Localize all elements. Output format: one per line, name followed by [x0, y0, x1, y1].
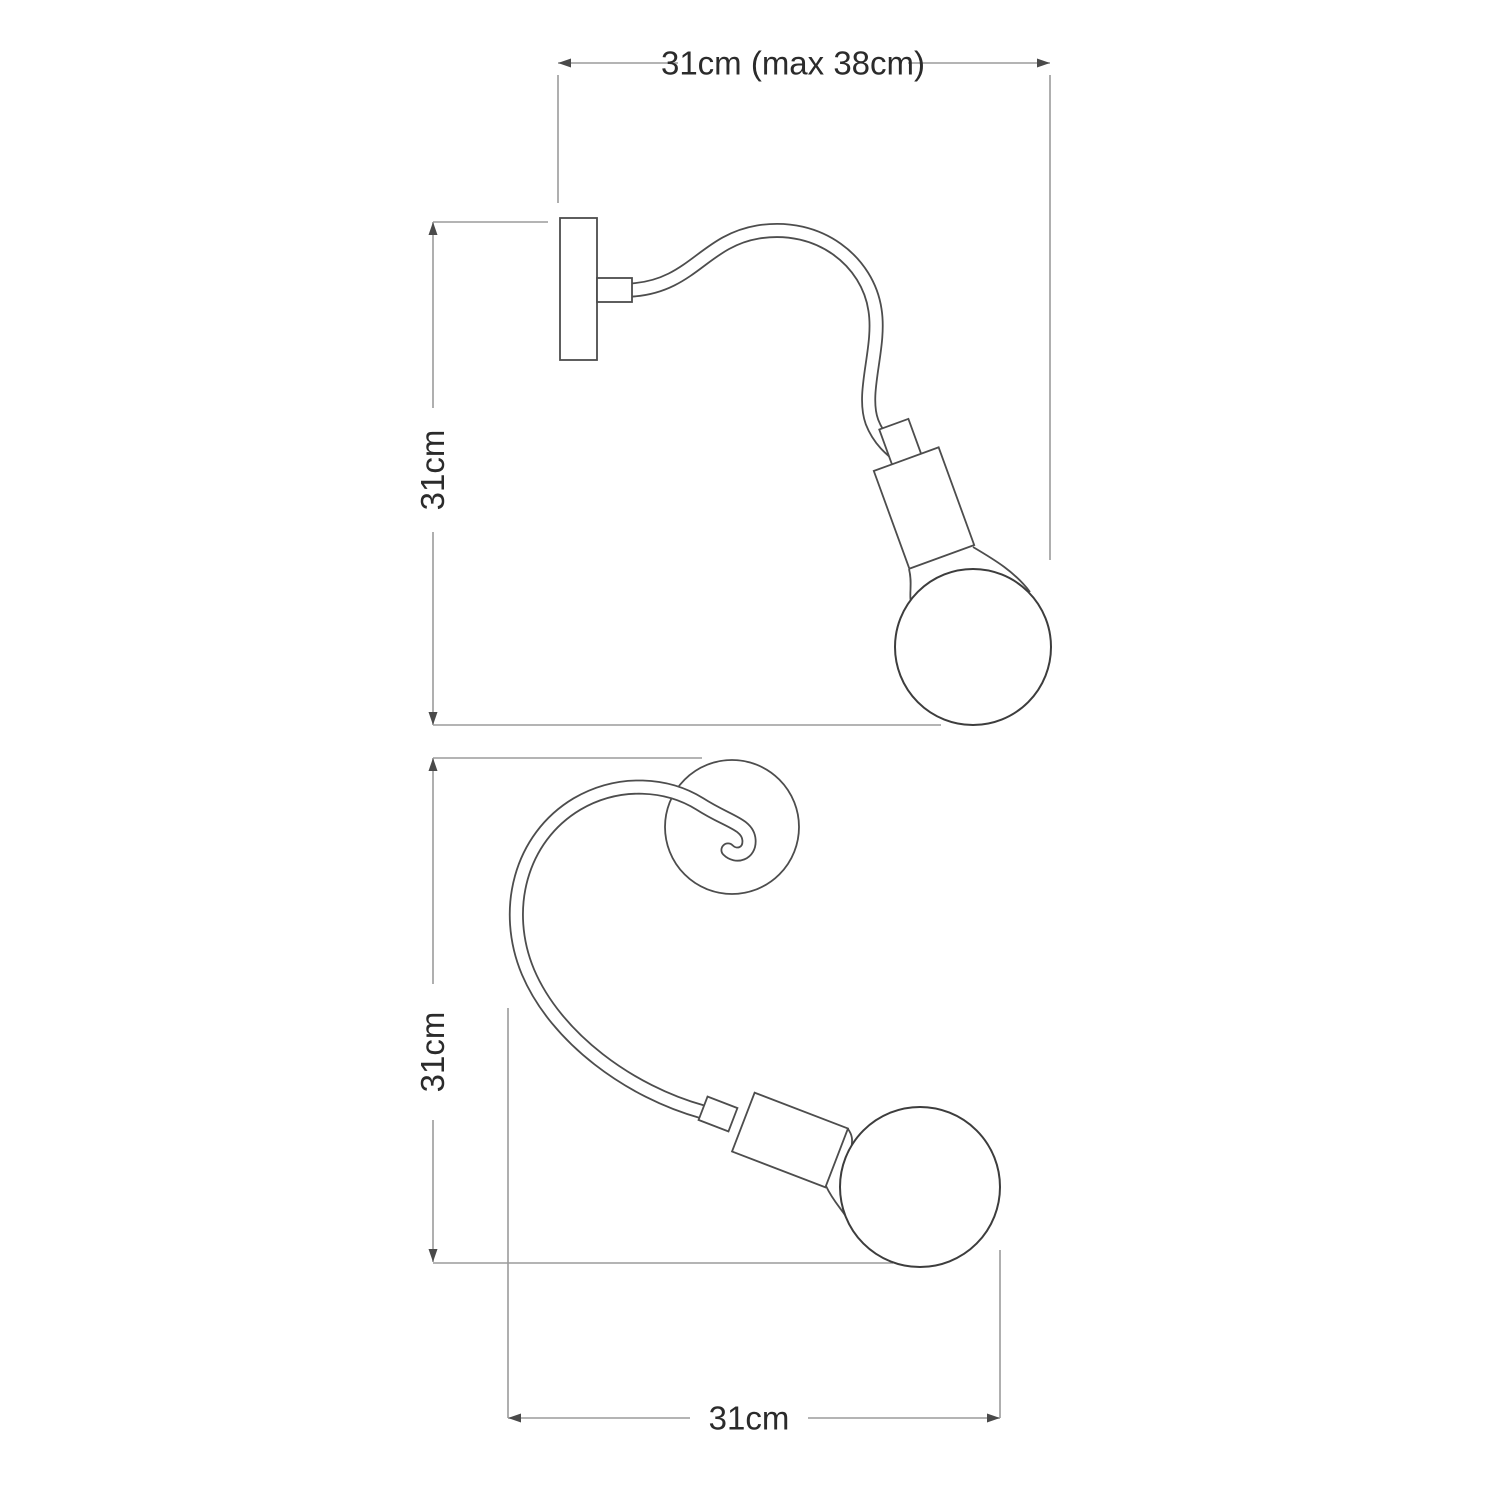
- arrowhead-right: [1037, 59, 1050, 68]
- bulb: [840, 1107, 1000, 1267]
- side-view: 31cm (max 38cm) 31cm: [414, 45, 1051, 726]
- arrowhead-bottom: [429, 1249, 438, 1262]
- dimension-label-front-width: 31cm: [709, 1400, 790, 1437]
- dimension-label-front-height: 31cm: [414, 1012, 451, 1093]
- arrowhead-top: [429, 222, 438, 235]
- front-view-height-dimension: 31cm: [414, 758, 893, 1263]
- arrowhead-bottom: [429, 712, 438, 725]
- lamp-holder: [874, 447, 974, 568]
- diagram-canvas: 31cm (max 38cm) 31cm: [0, 0, 1500, 1500]
- bulb: [895, 569, 1051, 725]
- socket-connector: [699, 1097, 738, 1132]
- wall-plate: [560, 218, 597, 360]
- lamp-dimension-diagram: 31cm (max 38cm) 31cm: [0, 0, 1500, 1500]
- mount-connector: [597, 278, 632, 302]
- arrowhead-right: [987, 1414, 1000, 1423]
- lamp-holder: [732, 1093, 848, 1188]
- arrowhead-left: [558, 59, 571, 68]
- arrowhead-left: [508, 1414, 521, 1423]
- arrowhead-top: [429, 758, 438, 771]
- side-view-height-dimension: 31cm: [414, 222, 941, 725]
- dimension-label-projection-width: 31cm (max 38cm): [661, 45, 925, 82]
- front-view: 31cm 31cm: [414, 758, 1000, 1437]
- dimension-label-side-height: 31cm: [414, 430, 451, 511]
- flex-arm: [632, 230, 903, 459]
- flex-arm-tube: [632, 230, 903, 459]
